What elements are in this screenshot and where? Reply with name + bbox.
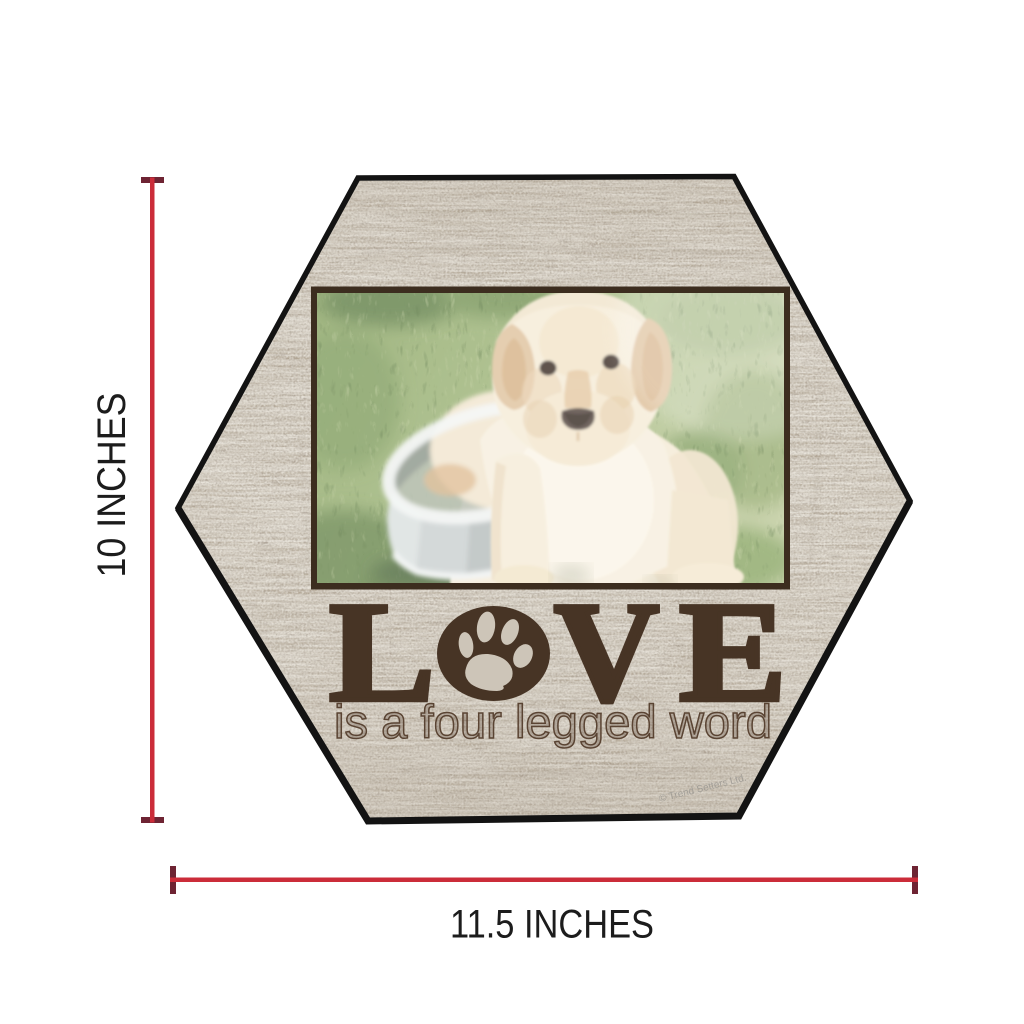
svg-text:is a four legged word: is a four legged word	[334, 695, 772, 748]
svg-text:10 INCHES: 10 INCHES	[90, 393, 134, 578]
svg-text:11.5 INCHES: 11.5 INCHES	[450, 903, 654, 947]
